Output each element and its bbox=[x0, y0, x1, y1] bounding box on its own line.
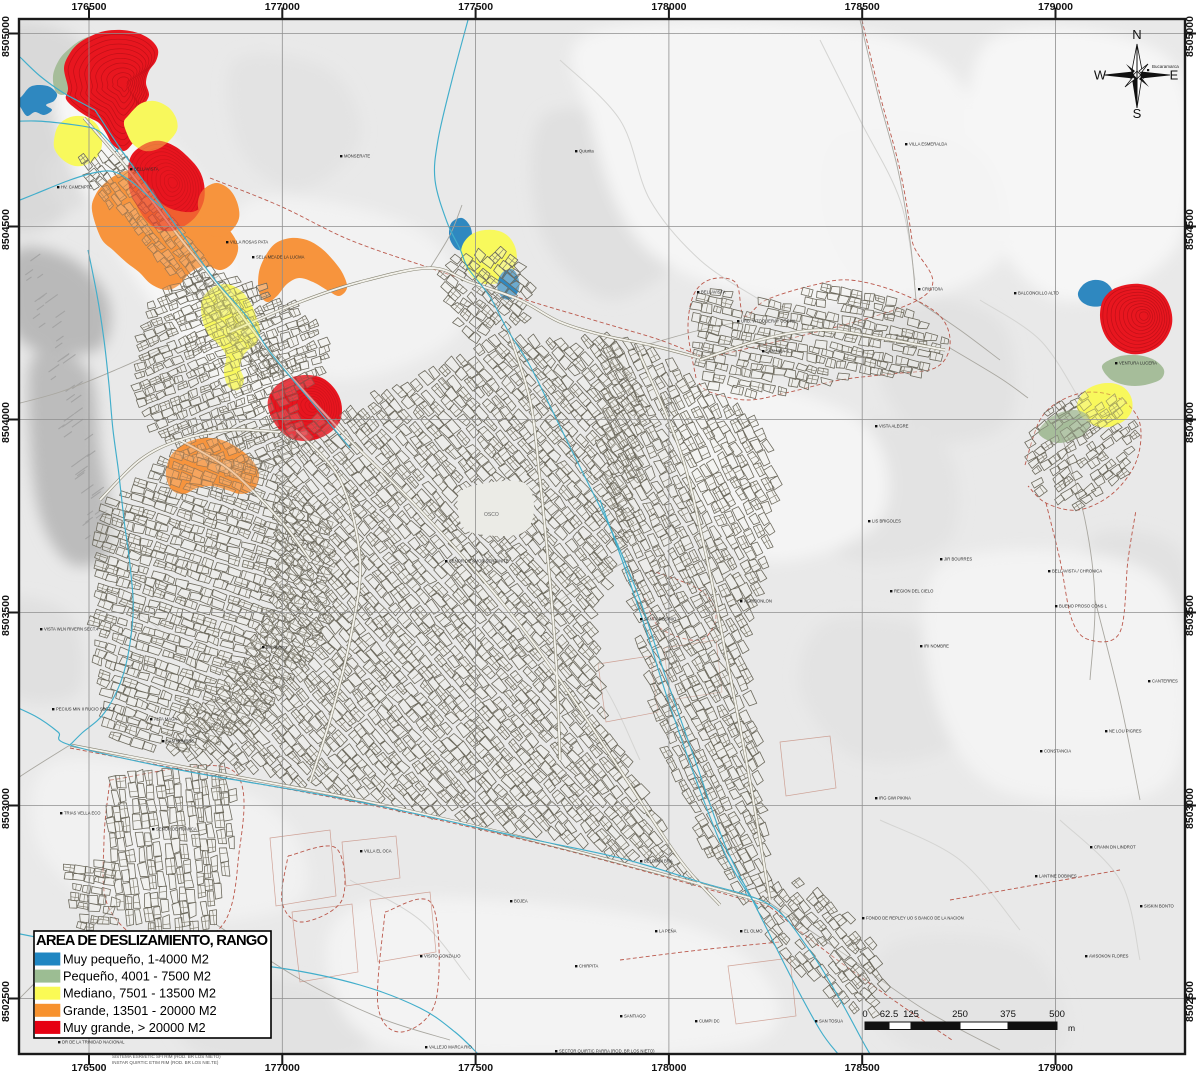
svg-text:Mediano, 7501 - 13500 M2: Mediano, 7501 - 13500 M2 bbox=[63, 986, 216, 1001]
svg-text:IRG GWI PIKINA: IRG GWI PIKINA bbox=[879, 796, 911, 801]
svg-text:SELA MEADE LA LUCMA: SELA MEADE LA LUCMA bbox=[256, 255, 305, 260]
svg-text:8503500: 8503500 bbox=[1184, 595, 1196, 636]
svg-text:E: E bbox=[1170, 68, 1179, 83]
svg-text:SISKIN BONTO: SISKIN BONTO bbox=[1144, 904, 1174, 909]
svg-text:VILLA ROSAS PATA: VILLA ROSAS PATA bbox=[230, 240, 268, 245]
svg-text:8503000: 8503000 bbox=[1184, 788, 1196, 829]
svg-text:8503000: 8503000 bbox=[0, 788, 12, 829]
svg-text:OSCO: OSCO bbox=[484, 512, 499, 518]
svg-text:8502500: 8502500 bbox=[1184, 981, 1196, 1022]
svg-text:CONSTANCIA: CONSTANCIA bbox=[1044, 749, 1071, 754]
svg-text:CHIRPITA: CHIRPITA bbox=[579, 964, 598, 969]
svg-text:INSTAR QUIRTIC ETIM RIM (ROD.: INSTAR QUIRTIC ETIM RIM (ROD. BR LOS NIE… bbox=[112, 1060, 219, 1065]
svg-text:178500: 178500 bbox=[845, 1062, 880, 1074]
svg-text:BUENO PROSO CONS L: BUENO PROSO CONS L bbox=[1059, 604, 1108, 609]
svg-text:8504000: 8504000 bbox=[1184, 402, 1196, 443]
svg-text:BELLAVISTA / CHRONICA: BELLAVISTA / CHRONICA bbox=[1052, 569, 1102, 574]
svg-text:8504000: 8504000 bbox=[0, 402, 12, 443]
svg-text:62.5: 62.5 bbox=[880, 1009, 899, 1020]
svg-text:VISTA WLN RIVERN SECT.4: VISTA WLN RIVERN SECT.4 bbox=[44, 627, 99, 632]
svg-text:URB. VITOQUERAY COCHA: URB. VITOQUERAY COCHA bbox=[741, 319, 796, 324]
svg-text:VILLA EL OCA: VILLA EL OCA bbox=[364, 849, 392, 854]
svg-text:178000: 178000 bbox=[651, 1, 686, 13]
svg-text:AVISOKON FLORES: AVISOKON FLORES bbox=[1089, 954, 1129, 959]
svg-text:8504500: 8504500 bbox=[1184, 209, 1196, 250]
svg-text:SAN TOSUA: SAN TOSUA bbox=[819, 1019, 843, 1024]
svg-text:TRIAS VELLA ECO: TRIAS VELLA ECO bbox=[64, 811, 101, 816]
svg-text:375: 375 bbox=[1000, 1009, 1016, 1020]
svg-text:Del Persog: Del Persog bbox=[266, 645, 287, 650]
svg-text:PECIUS MIN II RUCIO SECT. II: PECIUS MIN II RUCIO SECT. II bbox=[56, 707, 115, 712]
svg-text:CUMPI DC: CUMPI DC bbox=[699, 1019, 720, 1024]
svg-text:8505000: 8505000 bbox=[0, 16, 12, 57]
svg-text:Muy pequeño, 1-4000 M2: Muy pequeño, 1-4000 M2 bbox=[63, 952, 209, 967]
svg-text:EL OLMO: EL OLMO bbox=[744, 929, 763, 934]
svg-text:LANTINE DOBINES: LANTINE DOBINES bbox=[1039, 874, 1077, 879]
svg-text:Pequeño, 4001 - 7500 M2: Pequeño, 4001 - 7500 M2 bbox=[63, 969, 211, 984]
svg-text:177500: 177500 bbox=[458, 1, 493, 13]
svg-text:0: 0 bbox=[862, 1009, 867, 1020]
svg-text:176500: 176500 bbox=[71, 1, 106, 13]
svg-text:CANTERRES: CANTERRES bbox=[1152, 679, 1178, 684]
svg-text:JIR BOURRES: JIR BOURRES bbox=[944, 557, 972, 562]
svg-text:BELOMNI BRA: BELOMNI BRA bbox=[644, 859, 673, 864]
svg-text:CRISTO/IA: CRISTO/IA bbox=[922, 287, 943, 292]
svg-text:8505000: 8505000 bbox=[1184, 16, 1196, 57]
svg-text:125: 125 bbox=[903, 1009, 919, 1020]
svg-text:179000: 179000 bbox=[1038, 1062, 1073, 1074]
svg-text:NE LOU PIGRES: NE LOU PIGRES bbox=[1109, 729, 1142, 734]
svg-text:MONSERATE: MONSERATE bbox=[344, 154, 370, 159]
svg-text:VENTURA LUCERA: VENTURA LUCERA bbox=[1119, 361, 1157, 366]
svg-text:CRANN DN LINDROT: CRANN DN LINDROT bbox=[1094, 845, 1136, 850]
svg-text:AGRIBONLON: AGRIBONLON bbox=[744, 599, 772, 604]
svg-text:N: N bbox=[1132, 27, 1141, 42]
svg-text:VISTA ALEGRE: VISTA ALEGRE bbox=[879, 424, 909, 429]
svg-text:SEÑOR DE AMOR SENTANITE: SEÑOR DE AMOR SENTANITE bbox=[449, 559, 509, 564]
svg-text:S: S bbox=[1133, 106, 1142, 121]
svg-text:VALLEJO MARCA RIO: VALLEJO MARCA RIO bbox=[429, 1045, 472, 1050]
svg-text:8504500: 8504500 bbox=[0, 209, 12, 250]
svg-text:176500: 176500 bbox=[71, 1062, 106, 1074]
svg-text:SAN NILA S: SAN NILA S bbox=[766, 349, 789, 354]
svg-text:HV. CAMENPTE: HV. CAMENPTE bbox=[61, 185, 92, 190]
svg-text:IRI NOMBRE: IRI NOMBRE bbox=[924, 644, 949, 649]
svg-text:BELLAVISTA: BELLAVISTA bbox=[701, 290, 726, 295]
svg-text:SANTIAGO: SANTIAGO bbox=[624, 1014, 646, 1019]
svg-text:VILLA ESMERALDA: VILLA ESMERALDA bbox=[909, 142, 947, 147]
svg-text:DR DE LA TRINIDAD NACIONAL: DR DE LA TRINIDAD NACIONAL bbox=[62, 1040, 125, 1045]
svg-text:LA PEÑA: LA PEÑA bbox=[659, 929, 677, 934]
svg-text:ALTA MAGA: ALTA MAGA bbox=[154, 717, 177, 722]
svg-text:LIS BRIGOLES: LIS BRIGOLES bbox=[872, 519, 901, 524]
svg-text:8503500: 8503500 bbox=[0, 595, 12, 636]
svg-text:BOJEA: BOJEA bbox=[514, 899, 528, 904]
svg-text:Muy grande, > 20000 M2: Muy grande, > 20000 M2 bbox=[63, 1020, 206, 1035]
svg-text:Grande, 13501 - 20000 M2: Grande, 13501 - 20000 M2 bbox=[63, 1003, 217, 1018]
svg-text:W: W bbox=[1094, 68, 1107, 83]
svg-text:SAN NOMBRE: SAN NOMBRE bbox=[166, 739, 194, 744]
svg-text:REGION DEL CIELO: REGION DEL CIELO bbox=[894, 589, 934, 594]
svg-text:178500: 178500 bbox=[845, 1, 880, 13]
svg-text:Quiurita: Quiurita bbox=[579, 149, 594, 154]
svg-text:FONDO DE REPLEY UO S BANCO DE: FONDO DE REPLEY UO S BANCO DE LA NACION bbox=[866, 916, 964, 921]
svg-text:8502500: 8502500 bbox=[0, 981, 12, 1022]
svg-text:177000: 177000 bbox=[265, 1062, 300, 1074]
svg-text:Bucaramarca: Bucaramarca bbox=[1152, 64, 1179, 69]
svg-text:SEÑOR DE HUANCA: SEÑOR DE HUANCA bbox=[156, 827, 197, 832]
svg-text:VISITO GONZALIO: VISITO GONZALIO bbox=[424, 954, 461, 959]
svg-text:BELLAVISTA: BELLAVISTA bbox=[134, 167, 159, 172]
svg-text:250: 250 bbox=[952, 1009, 968, 1020]
svg-text:AREA DE DESLIZAMIENTO, RANGO: AREA DE DESLIZAMIENTO, RANGO bbox=[36, 933, 268, 949]
svg-text:SISTEMA ESRI/ETIC SFI RIM (ROD: SISTEMA ESRI/ETIC SFI RIM (ROD. BR LOS N… bbox=[112, 1054, 221, 1059]
svg-text:179000: 179000 bbox=[1038, 1, 1073, 13]
svg-text:SANTA ROSINIO: SANTA ROSINIO bbox=[644, 617, 677, 622]
svg-text:177000: 177000 bbox=[265, 1, 300, 13]
svg-text:177500: 177500 bbox=[458, 1062, 493, 1074]
svg-text:m: m bbox=[1068, 1023, 1075, 1033]
svg-text:500: 500 bbox=[1049, 1009, 1065, 1020]
svg-text:178000: 178000 bbox=[651, 1062, 686, 1074]
svg-text:BALCONCILLO ALTO: BALCONCILLO ALTO bbox=[1018, 291, 1060, 296]
